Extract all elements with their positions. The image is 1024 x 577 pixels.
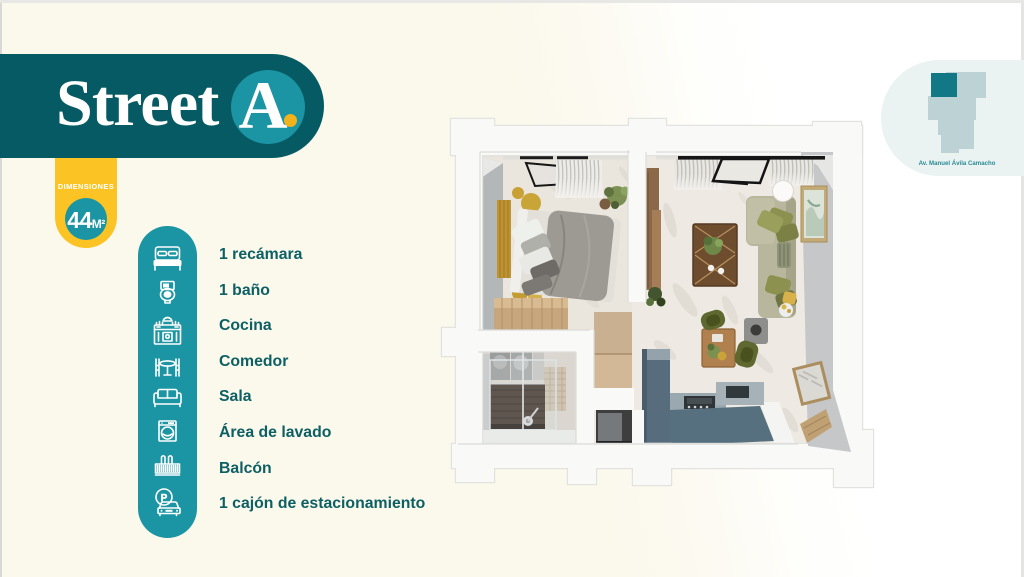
svg-text:Av. Manuel Ávila Camacho: Av. Manuel Ávila Camacho <box>919 160 996 167</box>
